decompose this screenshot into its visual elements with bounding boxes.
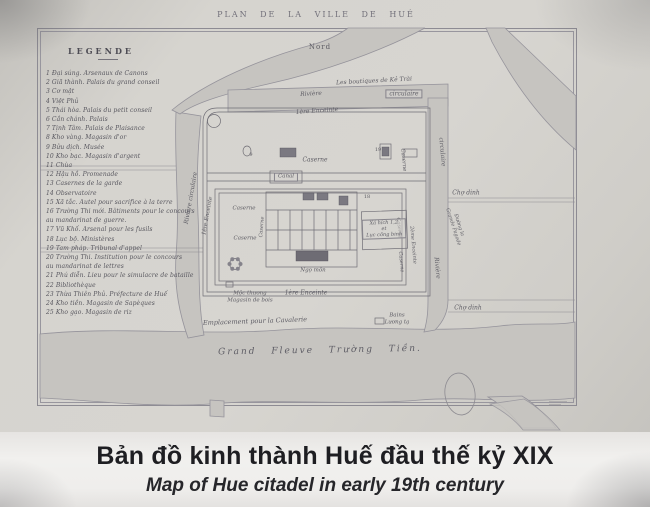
caserne-label: Caserne bbox=[234, 236, 257, 243]
circulaire-label: circulaire bbox=[385, 89, 422, 98]
xa-hich-box-label: Xá hích 1,2 et Lục công binh bbox=[362, 218, 407, 240]
ngo-mon-label: Ngọ môn bbox=[300, 268, 325, 275]
premiere-enceinte-label: 1ère Enceinte bbox=[201, 196, 214, 236]
printer-imprint bbox=[549, 401, 567, 405]
caserne-label: Caserne bbox=[397, 251, 405, 272]
caption: Bản đồ kinh thành Huế đầu thế kỷ XIX Map… bbox=[0, 432, 650, 507]
riviere-circulaire-label: Rivière circulaire bbox=[183, 171, 199, 224]
marker-19: 19 bbox=[375, 147, 381, 153]
map-labels: NordLes boutiques de Kẻ TràiRivièrecircu… bbox=[0, 0, 650, 507]
caserne-label: Caserne bbox=[233, 206, 256, 213]
bains-luong-ta-label: Bains Lương tạ bbox=[385, 312, 410, 325]
north-label: Nord bbox=[309, 43, 331, 51]
grande-pagode-road-label: Đường la Grande Pagode bbox=[444, 206, 467, 247]
caserne-label: Caserne bbox=[258, 216, 266, 237]
magasin-de-bois-label: Mộc thương Magasin de bois bbox=[227, 290, 273, 303]
cho-dinh-label: Chợ dinh bbox=[452, 189, 479, 196]
photo: PLAN DE LA VILLE DE HUÉ bbox=[0, 0, 650, 507]
cavalerie-label: Emplacement pour la Cavalerie bbox=[203, 316, 307, 327]
caption-vietnamese: Bản đồ kinh thành Huế đầu thế kỷ XIX bbox=[96, 442, 553, 471]
caserne-label: Caserne bbox=[302, 156, 327, 163]
riviere-label: Rivière bbox=[432, 257, 441, 279]
boutiques-ke-trai-label: Les boutiques de Kẻ Trài bbox=[336, 75, 412, 86]
grand-fleuve-label: Grand Fleuve Trường Tiền. bbox=[218, 344, 422, 358]
cho-dinh-label: Chợ dinh bbox=[454, 304, 481, 311]
marker-9: 9 bbox=[249, 152, 252, 158]
premiere-enceinte-label: 1ère Enceinte bbox=[295, 106, 338, 116]
canal-label: Canal bbox=[274, 173, 298, 182]
riviere-label: Rivière bbox=[300, 90, 322, 98]
caserne-label: Caserne bbox=[399, 148, 408, 171]
marker-18: 18 bbox=[364, 194, 370, 200]
circulaire-label: circulaire bbox=[437, 137, 447, 167]
deuxieme-enceinte-label: 2ème Enceinte bbox=[408, 226, 417, 264]
caption-english: Map of Hue citadel in early 19th century bbox=[146, 475, 504, 497]
premiere-enceinte-label: 1ère Enceinte bbox=[285, 289, 328, 296]
